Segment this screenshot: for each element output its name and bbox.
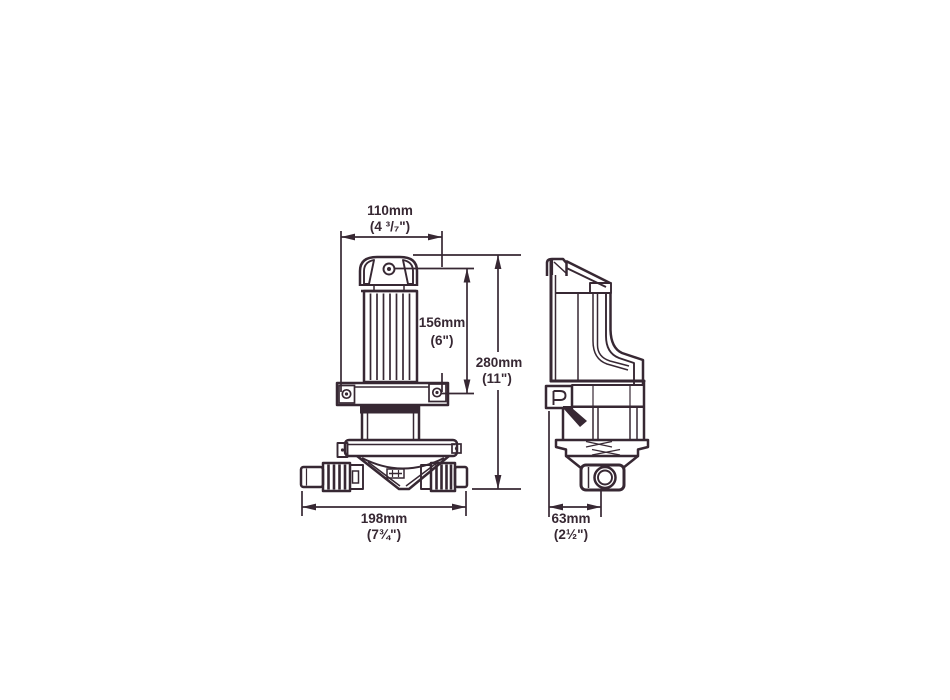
dim-overall-height-metric: 280mm: [476, 355, 523, 370]
mounting-bracket: [337, 383, 448, 405]
dim-motor-height-metric: 156mm: [419, 315, 466, 330]
dim-base-depth-metric: 63mm: [551, 511, 590, 526]
dimension-overall-width: 198mm (7¾"): [302, 491, 466, 542]
dimension-motor-height: 156mm (6"): [394, 269, 474, 394]
side-lower-body: [563, 381, 644, 440]
side-view: [546, 259, 648, 490]
motor-dome: [360, 257, 417, 291]
dim-base-depth-imperial: (2½"): [554, 527, 588, 542]
dim-motor-width-metric: 110mm: [367, 203, 413, 218]
side-outlet-elbow: [593, 293, 643, 385]
outlet-port: [581, 465, 624, 490]
technical-drawing-canvas: 110mm (4 ³/₇") 156mm (6") 280mm (11") 19…: [0, 0, 950, 700]
side-body: [547, 259, 611, 381]
pump-dimension-drawing: 110mm (4 ³/₇") 156mm (6") 280mm (11") 19…: [0, 0, 950, 700]
dim-motor-height-imperial: (6"): [431, 333, 454, 348]
pump-neck: [360, 405, 420, 440]
hose-connector-right: [421, 463, 467, 491]
clamp-flange: [338, 440, 462, 457]
motor-fins: [364, 291, 417, 382]
dimension-motor-width: 110mm (4 ³/₇"): [341, 203, 442, 392]
dim-motor-width-imperial: (4 ³/₇"): [370, 219, 410, 234]
dim-overall-height-imperial: (11"): [482, 371, 512, 386]
dim-overall-width-metric: 198mm: [361, 511, 408, 526]
dim-overall-width-imperial: (7¾"): [367, 527, 401, 542]
hose-connector-left: [301, 463, 363, 491]
